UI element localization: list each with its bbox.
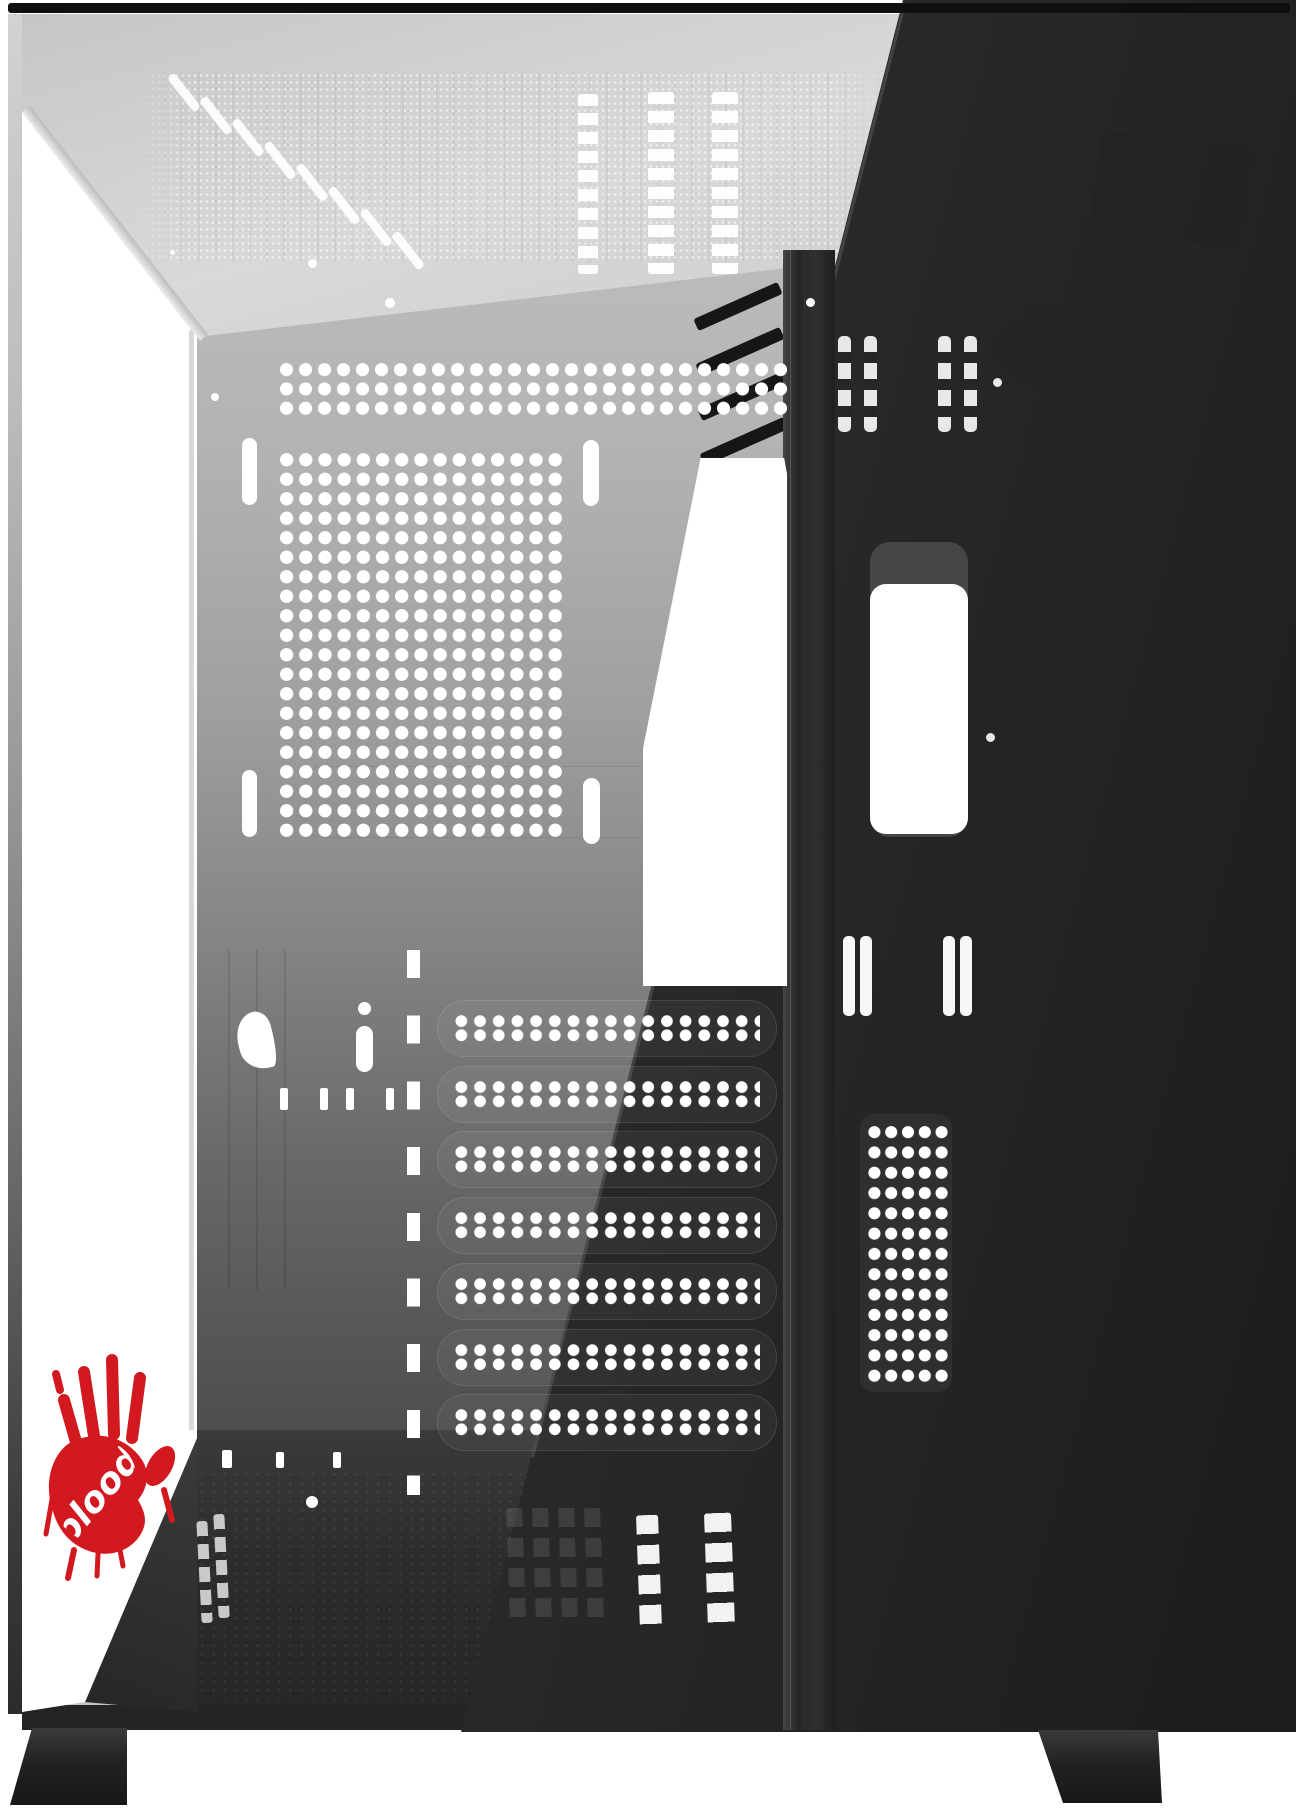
panel-hole <box>986 733 995 742</box>
mount-tick <box>222 1450 232 1468</box>
glass-reflection <box>960 290 1160 400</box>
edge-highlight <box>804 250 805 1730</box>
palm-drip <box>68 1550 74 1578</box>
screw-hole <box>385 298 395 308</box>
cable-slot <box>838 336 851 432</box>
product-photo: bloody <box>0 0 1296 1808</box>
finger <box>132 1378 140 1438</box>
fan-mount-slot <box>242 438 257 505</box>
bloody-logo: bloody <box>40 1348 210 1583</box>
top-mesh-vent <box>132 72 892 262</box>
pci-slot-vent-dots <box>452 1014 760 1043</box>
fan-mount-slot <box>583 778 600 844</box>
glass-reflection <box>1089 130 1251 250</box>
palm-drip <box>97 1554 98 1576</box>
mount-tick <box>346 1088 354 1110</box>
floor-vent-column <box>704 1513 735 1630</box>
cable-slot <box>964 336 977 432</box>
screw-hole <box>211 393 219 401</box>
edge-highlight <box>790 250 791 1730</box>
rear-panel-edge <box>783 250 835 1730</box>
finger <box>64 1400 76 1442</box>
pci-slot-vent-dots <box>452 1145 760 1174</box>
cable-routing-hole <box>358 1002 371 1015</box>
fan-mount-perforation <box>277 450 566 840</box>
front-left-pillar <box>8 14 24 1714</box>
thumb-drip <box>164 1490 172 1520</box>
mount-tick <box>320 1088 328 1110</box>
psu-vent-dots <box>866 1122 950 1386</box>
finger <box>84 1372 94 1436</box>
upper-vent-dot-band <box>277 360 791 418</box>
top-vent-column <box>712 92 738 274</box>
top-vent-column <box>648 92 674 274</box>
vent-slot <box>943 936 955 1016</box>
cable-routing-cutout <box>356 1026 373 1072</box>
pci-slot-vent-dots <box>452 1277 760 1306</box>
pci-slot-vent-dots <box>452 1080 760 1109</box>
palm-drip <box>120 1550 123 1566</box>
panel-hole <box>993 378 1002 387</box>
cable-slot-ladder <box>836 336 882 432</box>
bracket-etch-line <box>284 950 286 1290</box>
screw-hole <box>308 259 317 268</box>
floor-vent-column <box>636 1515 662 1630</box>
pci-slot-vent-dots <box>452 1211 760 1240</box>
mount-tick <box>280 1088 288 1110</box>
io-cutout-opening <box>870 584 968 834</box>
screw-hole <box>806 298 815 307</box>
vent-slot <box>843 936 855 1016</box>
pci-slot-vent-dots <box>452 1408 760 1437</box>
screw-hole <box>170 250 175 255</box>
cable-slot <box>864 336 877 432</box>
pci-slot-vent-dots <box>452 1343 760 1372</box>
mount-tick <box>333 1452 341 1468</box>
screw-hole <box>306 1496 318 1508</box>
mount-tick <box>276 1452 284 1468</box>
mount-tick <box>386 1088 394 1110</box>
bracket-etch-line <box>228 950 230 1290</box>
pci-bracket-rail <box>407 950 420 1495</box>
fan-mount-slot <box>583 440 599 506</box>
cable-slot <box>938 336 951 432</box>
fan-mount-slot <box>242 770 257 837</box>
front-glass-edge <box>189 330 194 1430</box>
case-foot-left <box>10 1728 130 1806</box>
bracket-etch-line <box>256 950 258 1290</box>
vent-slot <box>960 936 972 1016</box>
finger-drip <box>56 1374 60 1390</box>
finger <box>112 1360 114 1434</box>
top-vent-column <box>578 94 598 274</box>
vent-slot <box>860 936 872 1016</box>
case-foot-right <box>1036 1730 1164 1804</box>
top-edge-trim <box>8 3 1290 13</box>
cable-slot-ladder <box>936 336 982 432</box>
